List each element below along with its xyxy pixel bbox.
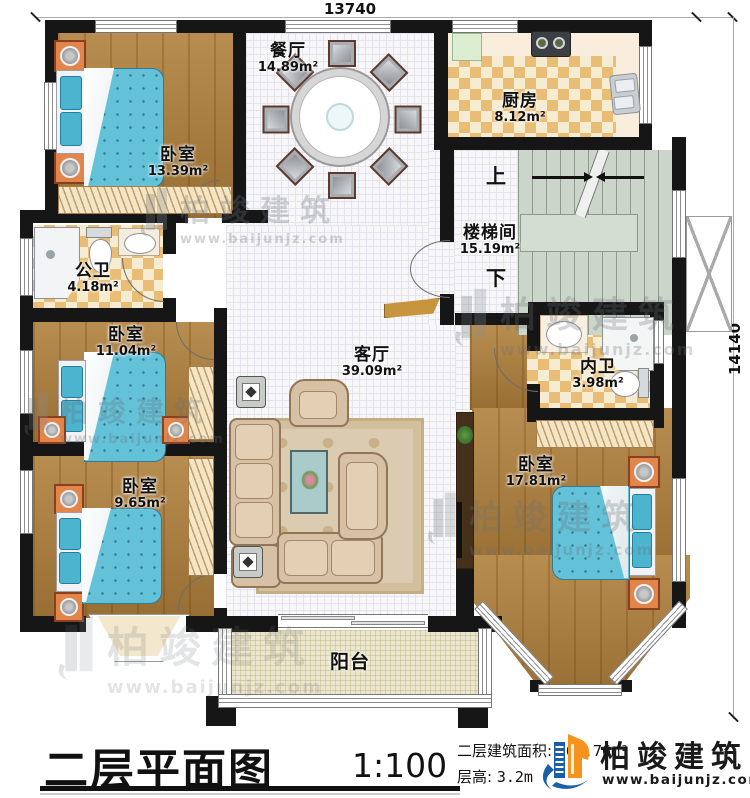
plant-icon — [457, 426, 473, 444]
wardrobe — [188, 366, 214, 440]
shower-drain — [630, 334, 638, 342]
speaker-icon — [233, 546, 263, 578]
wall — [214, 442, 227, 574]
window — [672, 478, 686, 582]
wall — [214, 308, 227, 448]
stairs-direction-arrow — [604, 176, 644, 179]
sliding-door-panel — [281, 616, 355, 620]
dining-chair — [328, 172, 356, 199]
pillow — [632, 532, 652, 568]
arrowhead-icon — [596, 172, 605, 182]
sink-basin — [614, 78, 635, 93]
window — [95, 20, 177, 33]
window — [20, 350, 33, 414]
room-label-inner-bath: 内卫3.98m² — [560, 358, 636, 392]
speaker-icon — [236, 376, 266, 408]
nightstand — [38, 416, 66, 444]
window — [639, 46, 652, 124]
room-label-bedroom-bottom-right: 卧室17.81m² — [496, 456, 576, 490]
window — [452, 20, 518, 33]
wall — [528, 302, 664, 315]
nightstand — [628, 578, 660, 610]
stove-burner — [553, 37, 565, 49]
wall — [440, 294, 454, 325]
scale-label: 1:100 — [352, 746, 447, 785]
coffee-table — [290, 450, 328, 514]
window — [285, 20, 391, 33]
room-label-bedroom-bottom-left: 卧室9.65m² — [102, 478, 178, 512]
arrowhead-icon — [584, 172, 593, 182]
armchair — [338, 452, 388, 540]
top-dimension-line — [35, 17, 733, 18]
wall — [163, 210, 176, 254]
pillow — [60, 76, 82, 110]
side-bay-window — [686, 216, 732, 332]
nightstand — [54, 152, 86, 184]
brand-name: 柏竣建筑 — [600, 732, 748, 776]
brand-logo: 柏竣建筑 www.baijunjz.com — [538, 728, 750, 796]
pillow — [60, 112, 82, 146]
room-label-living: 客厅39.09m² — [332, 346, 412, 380]
room-label-balcony: 阳台 — [312, 652, 388, 673]
sliding-door-panel — [351, 621, 425, 625]
brand-site: www.baijunjz.com — [602, 772, 750, 788]
wall — [434, 20, 448, 144]
room-label-stairwell: 楼梯间15.19m² — [452, 224, 528, 258]
nightstand — [628, 456, 660, 488]
pillow — [632, 494, 652, 530]
room-label-bedroom-mid-left: 卧室11.04m² — [88, 326, 164, 360]
bay-window — [538, 684, 622, 696]
shower-drain — [46, 250, 55, 259]
pillow — [61, 366, 83, 398]
pillow — [59, 518, 81, 550]
stairs-down-label: 下 — [486, 262, 506, 291]
kitchen-counter-board — [452, 33, 482, 61]
nightstand — [54, 40, 86, 72]
nightstand — [162, 416, 190, 444]
pillow — [59, 552, 81, 584]
nightstand — [54, 592, 84, 622]
wardrobe — [188, 458, 214, 576]
floor-height-value: 3.2m — [497, 768, 533, 786]
armchair — [289, 379, 349, 427]
dining-chair — [395, 106, 422, 134]
room-label-public-bath: 公卫4.18m² — [55, 262, 131, 296]
nightstand — [54, 484, 84, 514]
window — [20, 238, 33, 296]
wall — [434, 137, 652, 150]
room-label-kitchen: 厨房8.12m² — [485, 92, 555, 126]
wardrobe — [536, 420, 654, 448]
stove-burner — [536, 37, 548, 49]
bath-sink — [546, 321, 582, 348]
sink-basin — [613, 95, 634, 110]
lazy-susan — [326, 103, 354, 131]
stairs-up-label: 上 — [486, 160, 506, 189]
stairs-landing — [520, 214, 638, 252]
top-dimension-label: 13740 — [318, 0, 382, 18]
sofa — [229, 418, 281, 546]
toilet-tank — [86, 227, 112, 238]
floor-height-line: 层高: 3.2m — [457, 766, 533, 787]
dining-chair — [263, 106, 290, 134]
room-label-bedroom-top-left: 卧室13.39m² — [140, 146, 216, 180]
wall — [527, 313, 540, 351]
tv-icon — [457, 502, 462, 558]
floor-height-label: 层高: — [457, 768, 492, 786]
wall — [230, 616, 278, 632]
page-title: 二层平面图 — [44, 734, 274, 798]
building-logo-icon — [538, 730, 596, 792]
stairs-direction-arrow — [532, 176, 584, 179]
window — [672, 190, 686, 258]
wall — [20, 308, 176, 322]
window — [20, 470, 33, 534]
wall — [456, 598, 474, 628]
balcony-railing — [218, 694, 492, 708]
room-label-dining: 餐厅14.89m² — [240, 42, 336, 76]
floorplan-page: 13740 14140 上 下 — [0, 0, 750, 798]
bath-sink — [124, 233, 156, 254]
wardrobe — [58, 186, 232, 214]
